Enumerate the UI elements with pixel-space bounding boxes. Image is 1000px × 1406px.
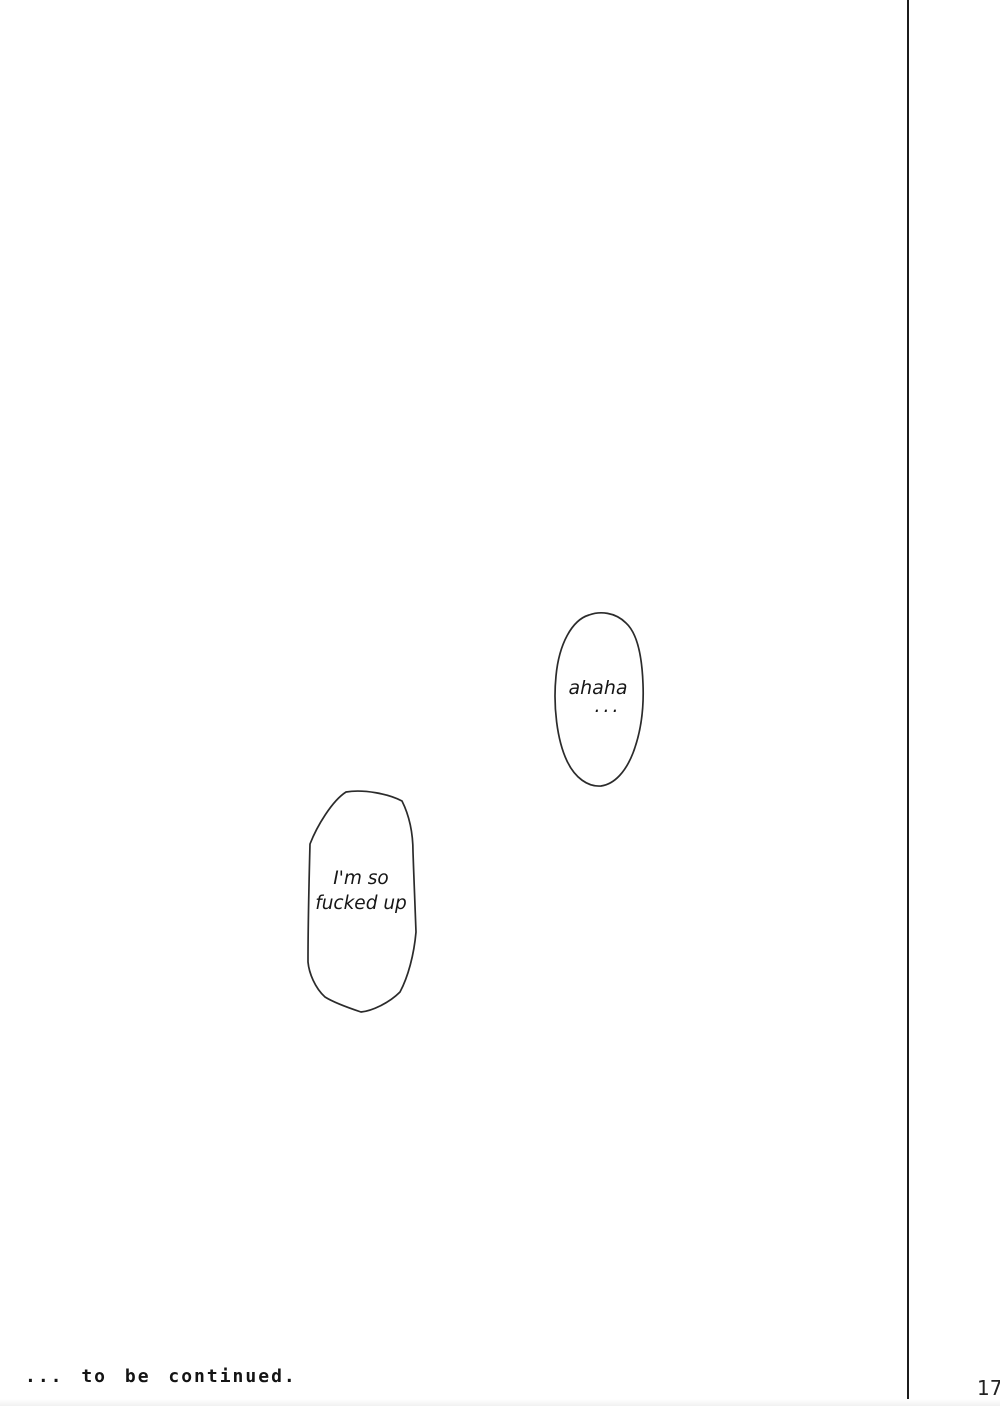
speech-line: I'm so [308,866,414,891]
speech-ellipsis: ... [553,695,643,717]
speech-bubble-fucked-up-text: I'm so fucked up [308,866,414,916]
speech-bubble-ahaha-text: ahaha ... [553,677,643,717]
speech-line: fucked up [308,891,414,916]
scan-edge-shadow [0,1399,1000,1406]
to-be-continued-caption: ... to be continued. [25,1366,297,1387]
manga-page: ahaha ... I'm so fucked up ... to be con… [0,0,1000,1406]
page-number: 17 [977,1376,1000,1400]
speech-bubble-layer [0,0,1000,1406]
